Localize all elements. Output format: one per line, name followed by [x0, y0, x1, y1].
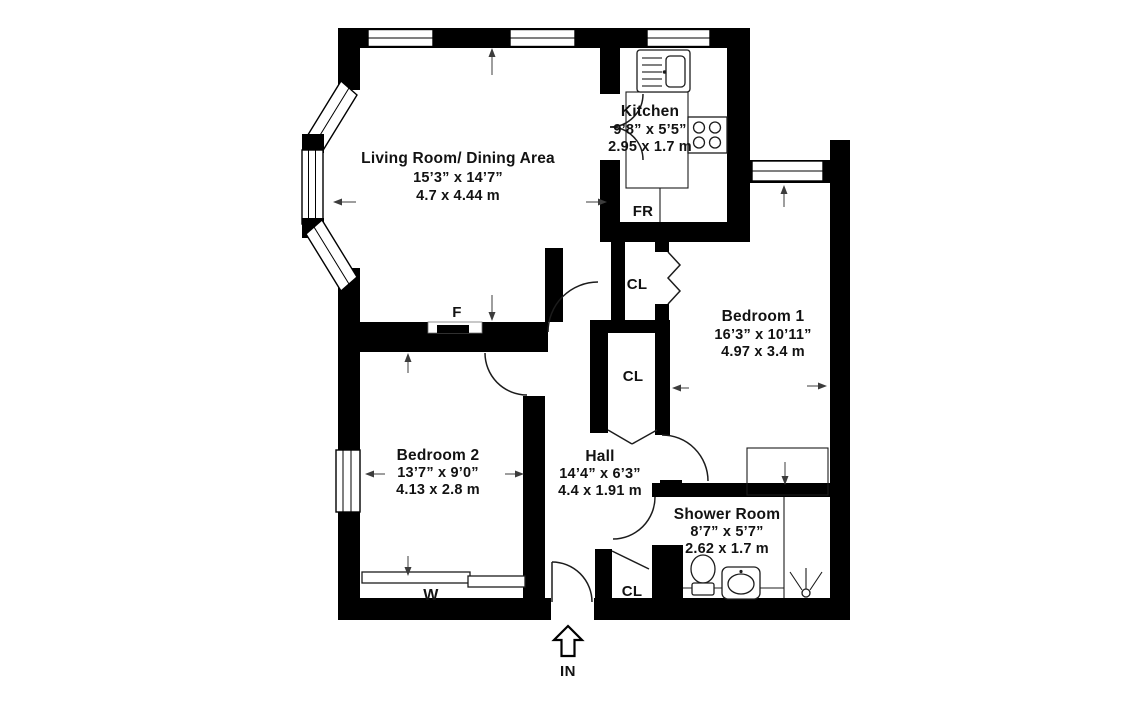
- wall-bedroom2-east: [523, 396, 545, 602]
- bedroom2-wardrobe-left-icon: [362, 572, 470, 583]
- living-room-name: Living Room/ Dining Area: [361, 150, 555, 167]
- wall-kitchen-west-lower: [600, 160, 620, 222]
- wall-bottom-right: [594, 598, 850, 620]
- shower-room-label: Shower Room 8’7” x 5’7” 2.62 x 1.7 m: [674, 506, 780, 557]
- bedroom1-dims-imperial: 16’3” x 10’11”: [714, 327, 811, 343]
- toilet-tank-icon: [692, 583, 714, 595]
- kitchen-dims-imperial: 9’8” x 5’5”: [613, 122, 686, 138]
- living-room-dims-metric: 4.7 x 4.44 m: [416, 188, 500, 204]
- closet3-label: CL: [622, 583, 643, 600]
- kitchen-label: Kitchen 9’8” x 5’5” 2.95 x 1.7 m: [608, 103, 692, 155]
- window-bedroom2-icon: [336, 450, 360, 512]
- kitchen-dims-metric: 2.95 x 1.7 m: [608, 139, 692, 155]
- living-room-dims-imperial: 15’3” x 14’7”: [413, 170, 503, 186]
- bedroom2-dims-metric: 4.13 x 2.8 m: [396, 482, 480, 498]
- entrance-door-arc-icon: [552, 562, 592, 602]
- floor-plan-canvas: IN Living Room/ Dining Area 15’3” x 14’7…: [0, 0, 1134, 714]
- bedroom2-name: Bedroom 2: [397, 447, 480, 464]
- closet1-label: CL: [627, 276, 648, 293]
- fireplace: [428, 322, 482, 333]
- closet3-door-icon: [612, 551, 649, 569]
- shower-room-dims-imperial: 8’7” x 5’7”: [690, 524, 763, 540]
- wardrobe-label: W: [423, 587, 439, 604]
- bay-window: [302, 81, 357, 291]
- hall-name: Hall: [585, 448, 614, 465]
- shower-door-icon: [613, 497, 655, 539]
- wall-kitchen-south: [600, 222, 750, 242]
- bedroom1-label: Bedroom 1 16’3” x 10’11” 4.97 x 3.4 m: [714, 308, 811, 360]
- bedroom2-wardrobe-right-icon: [468, 576, 525, 587]
- fireplace-label: F: [452, 304, 461, 321]
- wall-east: [830, 140, 850, 620]
- shower-room-dims-metric: 2.62 x 1.7 m: [685, 541, 769, 557]
- entrance-label: IN: [560, 663, 576, 680]
- wall-closet1-south: [590, 320, 670, 333]
- wall-bottom-left: [338, 598, 551, 620]
- floor-plan-page: IN Living Room/ Dining Area 15’3” x 14’7…: [0, 0, 1134, 714]
- bedroom2-dims-imperial: 13’7” x 9’0”: [397, 465, 478, 481]
- closet2-door-right-icon: [632, 430, 657, 444]
- closet1-bifold-door-icon: [668, 252, 680, 304]
- wall-closet1-stub-top: [655, 242, 669, 252]
- fridge-label: FR: [633, 203, 654, 220]
- hall-dims-metric: 4.4 x 1.91 m: [558, 483, 642, 499]
- bedroom1-dims-metric: 4.97 x 3.4 m: [721, 344, 805, 360]
- wall-kitchen-east: [727, 28, 750, 242]
- toilet-icon: [691, 555, 715, 583]
- bedroom1-door-icon: [662, 435, 708, 481]
- wall-closet1-stub-bottom: [655, 304, 669, 320]
- closet2-door-left-icon: [608, 430, 632, 444]
- stove-icon: [688, 117, 727, 153]
- hall-dims-imperial: 14’4” x 6’3”: [559, 466, 640, 482]
- closet2-label: CL: [623, 368, 644, 385]
- entrance-marker: IN: [554, 626, 582, 680]
- bedroom2-door-icon: [485, 353, 527, 395]
- wall-closet2-west: [590, 333, 608, 433]
- wall-pier: [545, 248, 563, 322]
- sink-faucet-icon: [663, 70, 667, 74]
- kitchen-name: Kitchen: [621, 103, 679, 120]
- bay-window-middle-icon: [302, 150, 323, 224]
- living-room-label: Living Room/ Dining Area 15’3” x 14’7” 4…: [361, 150, 555, 204]
- hall-label: Hall 14’4” x 6’3” 4.4 x 1.91 m: [558, 448, 642, 499]
- wall-closet2-east: [655, 333, 670, 435]
- basin-faucet-icon: [739, 570, 742, 573]
- wall-west: [338, 268, 360, 620]
- wall-closet1-west: [611, 242, 625, 322]
- wall-kitchen-west-upper: [600, 48, 620, 94]
- entrance-arrow-icon: [554, 626, 582, 656]
- shower-room-name: Shower Room: [674, 506, 780, 523]
- bedroom2-label: Bedroom 2 13’7” x 9’0” 4.13 x 2.8 m: [396, 447, 480, 498]
- fireplace-insert-icon: [437, 325, 469, 333]
- bedroom1-name: Bedroom 1: [722, 308, 805, 325]
- wall-closet3-west: [595, 549, 612, 602]
- sink-basin-icon: [666, 56, 685, 87]
- wall-shower-west: [652, 545, 683, 620]
